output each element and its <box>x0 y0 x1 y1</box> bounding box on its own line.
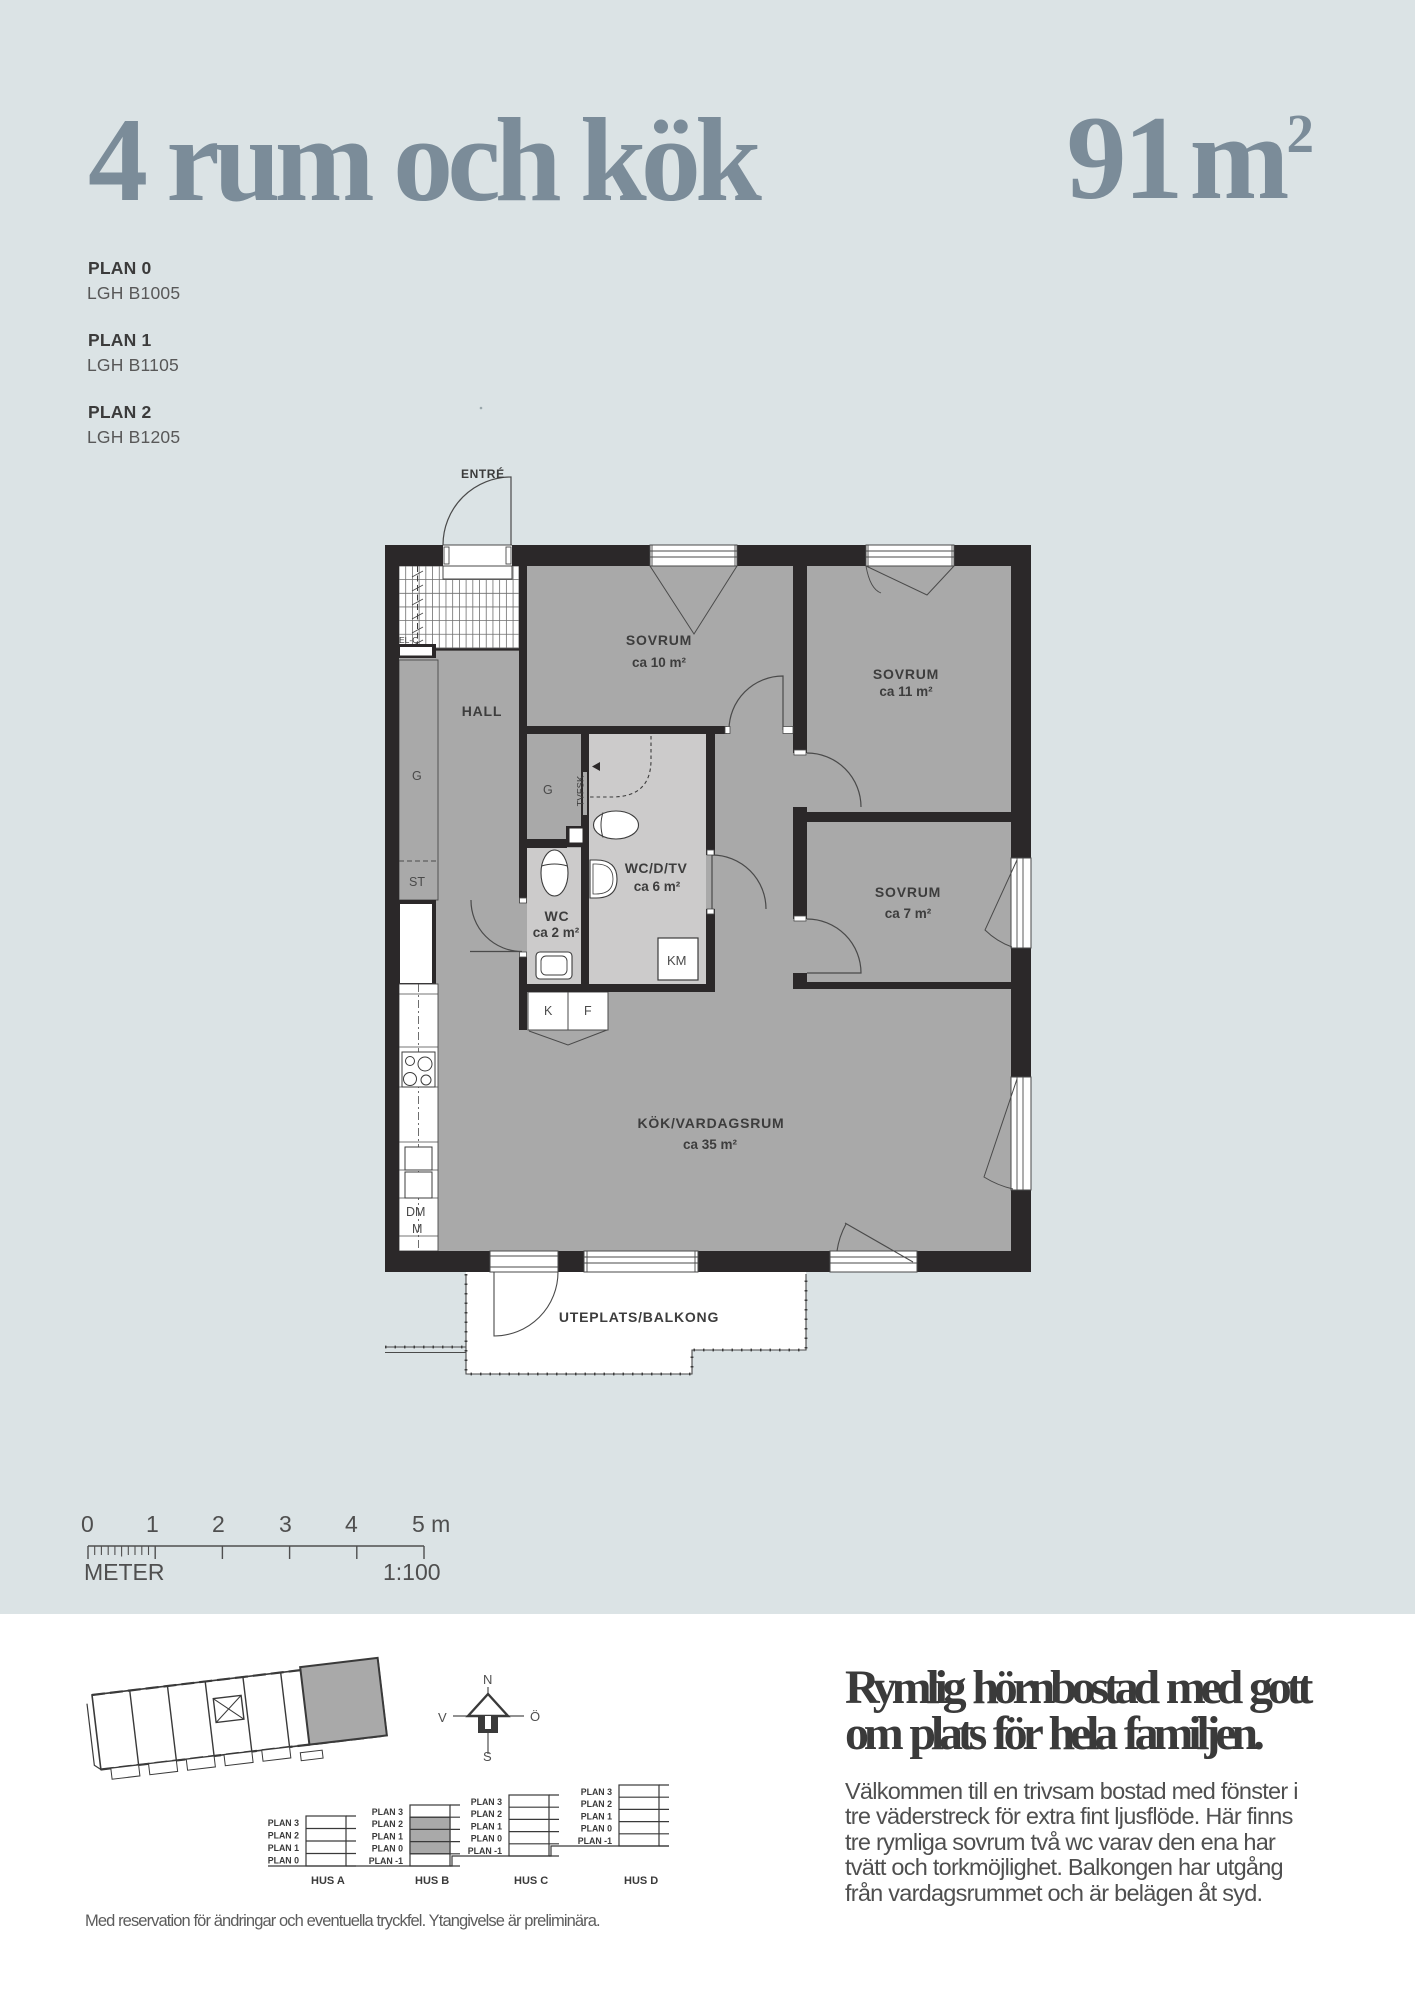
svg-text:METER: METER <box>84 1559 165 1585</box>
svg-text:5 m: 5 m <box>412 1511 450 1537</box>
svg-text:PLAN 3: PLAN 3 <box>471 1797 502 1807</box>
svg-text:WC: WC <box>545 908 570 924</box>
svg-text:HUS D: HUS D <box>624 1875 658 1887</box>
svg-text:PLAN 0: PLAN 0 <box>268 1856 299 1866</box>
svg-text:PLAN 0: PLAN 0 <box>581 1824 612 1834</box>
svg-text:N: N <box>483 1672 492 1687</box>
svg-text:EL-C: EL-C <box>399 635 418 645</box>
svg-text:HUS C: HUS C <box>514 1875 548 1887</box>
svg-text:M: M <box>412 1222 422 1236</box>
svg-text:4: 4 <box>345 1511 358 1537</box>
svg-text:PLAN 2: PLAN 2 <box>581 1799 612 1809</box>
svg-text:PLAN -1: PLAN -1 <box>369 1856 403 1866</box>
svg-text:G: G <box>412 769 422 783</box>
svg-text:PLAN -1: PLAN -1 <box>578 1836 612 1846</box>
svg-text:PLAN 2: PLAN 2 <box>268 1831 299 1841</box>
svg-text:ENTRÉ: ENTRÉ <box>461 466 505 481</box>
svg-text:KM: KM <box>667 953 687 968</box>
svg-text:PLAN 3: PLAN 3 <box>268 1818 299 1828</box>
svg-text:PLAN 2: PLAN 2 <box>372 1819 403 1829</box>
svg-text:HUS B: HUS B <box>415 1875 449 1887</box>
svg-text:PLAN -1: PLAN -1 <box>468 1846 502 1856</box>
svg-text:TVFSK: TVFSK <box>576 775 587 806</box>
svg-text:F: F <box>584 1004 592 1018</box>
svg-text:SOVRUM: SOVRUM <box>626 632 692 648</box>
svg-text:PLAN 0: PLAN 0 <box>372 1844 403 1854</box>
svg-text:PLAN 3: PLAN 3 <box>372 1807 403 1817</box>
svg-text:1:100: 1:100 <box>383 1559 441 1585</box>
svg-text:PLAN 1: PLAN 1 <box>471 1821 502 1831</box>
svg-text:ca 35 m²: ca 35 m² <box>683 1137 738 1152</box>
svg-text:ST: ST <box>409 875 425 889</box>
svg-text:1: 1 <box>146 1511 159 1537</box>
svg-text:2: 2 <box>212 1511 225 1537</box>
svg-text:HALL: HALL <box>462 703 503 719</box>
svg-text:DM: DM <box>406 1205 425 1219</box>
svg-text:V: V <box>438 1710 447 1725</box>
svg-text:SOVRUM: SOVRUM <box>875 884 941 900</box>
svg-text:ca 2 m²: ca 2 m² <box>533 925 580 940</box>
svg-text:PLAN 1: PLAN 1 <box>268 1843 299 1853</box>
svg-text:HUS A: HUS A <box>311 1875 345 1887</box>
svg-text:ca 11 m²: ca 11 m² <box>879 684 933 699</box>
svg-text:3: 3 <box>279 1511 292 1537</box>
svg-text:ca 10 m²: ca 10 m² <box>632 655 687 670</box>
svg-text:UTEPLATS/BALKONG: UTEPLATS/BALKONG <box>559 1309 719 1325</box>
svg-text:G: G <box>543 783 553 797</box>
svg-text:PLAN 1: PLAN 1 <box>581 1811 612 1821</box>
svg-text:0: 0 <box>81 1511 94 1537</box>
svg-text:KÖK/VARDAGSRUM: KÖK/VARDAGSRUM <box>637 1115 784 1131</box>
svg-text:K: K <box>544 1004 553 1018</box>
svg-text:ca 7 m²: ca 7 m² <box>885 906 932 921</box>
svg-text:WC/D/TV: WC/D/TV <box>625 860 688 876</box>
svg-text:Ö: Ö <box>530 1709 540 1724</box>
svg-text:PLAN 3: PLAN 3 <box>581 1787 612 1797</box>
svg-text:PLAN 1: PLAN 1 <box>372 1831 403 1841</box>
svg-text:S: S <box>483 1749 492 1764</box>
svg-text:SOVRUM: SOVRUM <box>873 666 939 682</box>
svg-text:PLAN 0: PLAN 0 <box>471 1834 502 1844</box>
svg-text:ca 6 m²: ca 6 m² <box>634 879 681 894</box>
svg-text:PLAN 2: PLAN 2 <box>471 1809 502 1819</box>
